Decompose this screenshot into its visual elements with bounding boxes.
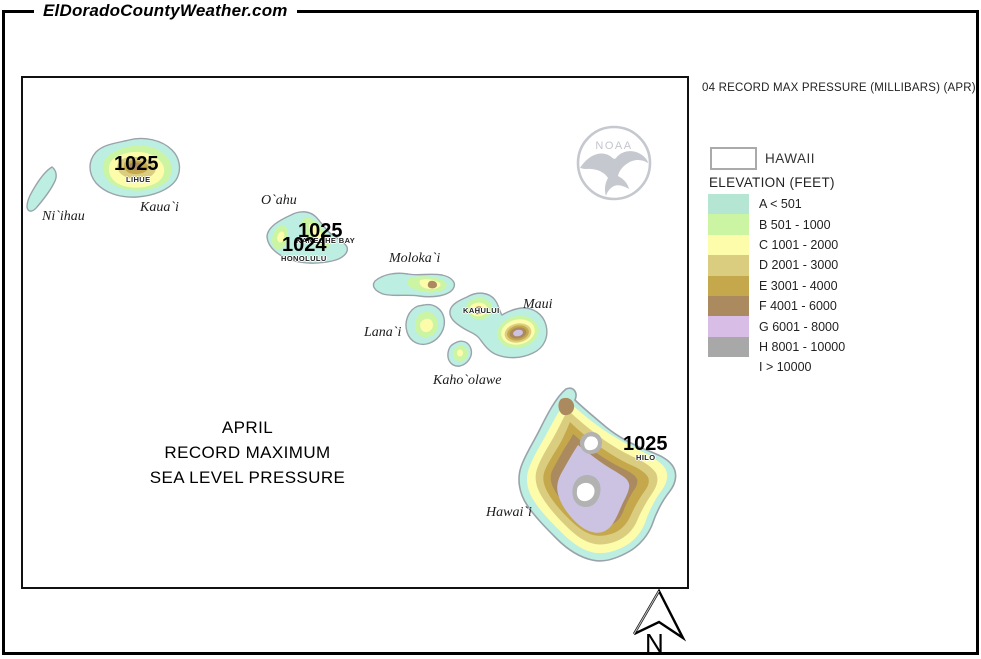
hawaii-region-label: HAWAII	[765, 151, 815, 166]
legend-label-h: H 8001 - 10000	[759, 340, 845, 354]
legend-row: B 501 - 1000	[708, 214, 845, 234]
island-molokai	[373, 273, 454, 296]
legend-label-f: F 4001 - 6000	[759, 299, 837, 313]
noaa-logo-text: NOAA	[595, 140, 632, 152]
island-label-niihau: Ni`ihau	[42, 209, 85, 225]
weather-map-page: ElDoradoCountyWeather.com	[0, 0, 981, 659]
pressure-value-hilo: 1025	[623, 434, 668, 454]
island-label-maui: Maui	[523, 297, 553, 313]
legend-label-i: I > 10000	[759, 360, 811, 374]
island-label-molokai: Moloka`i	[389, 251, 440, 267]
legend-row: F 4001 - 6000	[708, 296, 845, 316]
island-label-oahu: O`ahu	[261, 193, 297, 209]
island-label-kauai: Kaua`i	[140, 200, 179, 216]
legend-row: H 8001 - 10000	[708, 337, 845, 357]
legend-swatch-d	[708, 255, 749, 275]
legend-label-g: G 6001 - 8000	[759, 320, 839, 334]
legend-label-c: C 1001 - 2000	[759, 238, 838, 252]
station-label-honolulu: HONOLULU	[281, 255, 327, 263]
island-niihau	[27, 167, 56, 211]
legend-row: I > 10000	[708, 357, 845, 377]
hawaii-region-swatch	[710, 147, 757, 170]
legend-row: A < 501	[708, 194, 845, 214]
island-hawaii	[519, 388, 676, 561]
site-title: ElDoradoCountyWeather.com	[34, 1, 297, 21]
legend-row: D 2001 - 3000	[708, 255, 845, 275]
legend-title: 04 RECORD MAX PRESSURE (MILLIBARS) (APR)	[702, 82, 976, 94]
elevation-legend: A < 501 B 501 - 1000 C 1001 - 2000 D 200…	[708, 194, 845, 378]
legend-swatch-f	[708, 296, 749, 316]
elevation-section-label: ELEVATION (FEET)	[709, 175, 835, 190]
legend-label-b: B 501 - 1000	[759, 218, 831, 232]
island-label-lanai: Lana`i	[364, 325, 401, 341]
noaa-logo-icon: NOAA	[574, 123, 654, 203]
station-label-kahului: KAHULUI	[463, 307, 500, 315]
caption-line-1: APRIL	[130, 415, 365, 440]
pressure-value-honolulu: 1024	[282, 235, 327, 255]
legend-swatch-e	[708, 276, 749, 296]
caption-line-2: RECORD MAXIMUM	[130, 440, 365, 465]
north-arrow-label: N	[645, 628, 664, 659]
legend-row: G 6001 - 8000	[708, 316, 845, 336]
legend-swatch-a	[708, 194, 749, 214]
legend-label-a: A < 501	[759, 197, 802, 211]
island-label-hawaii: Hawai`i	[486, 505, 532, 521]
legend-swatch-c	[708, 235, 749, 255]
legend-row: E 3001 - 4000	[708, 276, 845, 296]
legend-label-e: E 3001 - 4000	[759, 279, 838, 293]
legend-label-d: D 2001 - 3000	[759, 258, 838, 272]
island-label-kahoolawe: Kaho`olawe	[433, 373, 501, 389]
legend-swatch-b	[708, 214, 749, 234]
pressure-value-lihue: 1025	[114, 154, 159, 174]
island-kahoolawe	[448, 341, 472, 366]
station-label-hilo: HILO	[636, 454, 656, 462]
legend-swatch-g	[708, 316, 749, 336]
legend-row: C 1001 - 2000	[708, 235, 845, 255]
legend-swatch-h	[708, 337, 749, 357]
island-lanai	[406, 305, 444, 345]
caption-line-3: SEA LEVEL PRESSURE	[130, 465, 365, 490]
legend-swatch-i	[708, 357, 749, 377]
station-label-lihue: LIHUE	[126, 176, 151, 184]
map-caption: APRIL RECORD MAXIMUM SEA LEVEL PRESSURE	[130, 415, 365, 490]
